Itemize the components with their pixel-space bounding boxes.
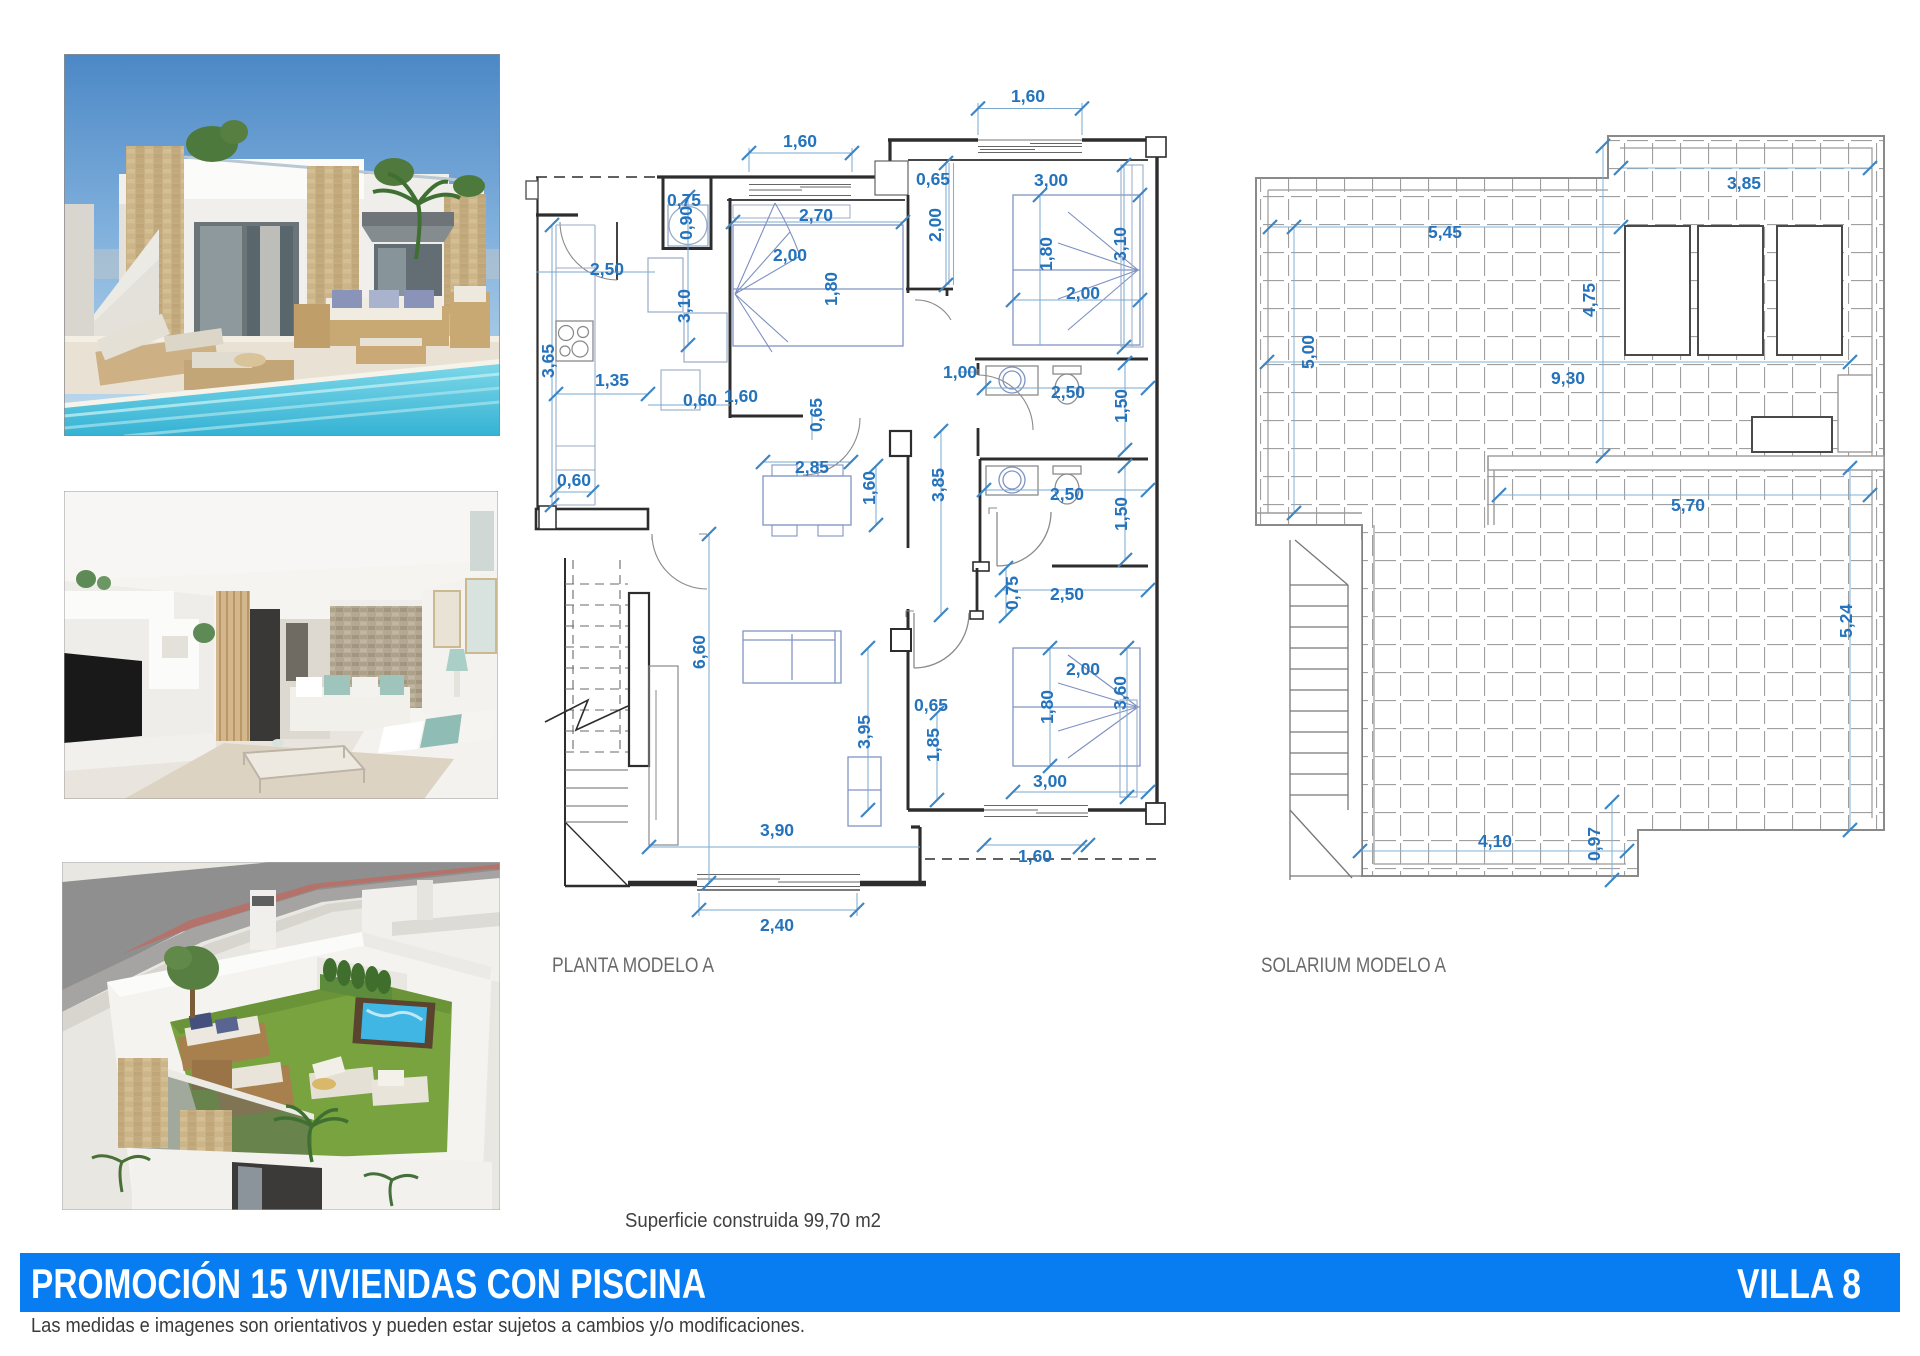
svg-text:1,60: 1,60: [724, 386, 758, 406]
svg-text:3,85: 3,85: [928, 468, 948, 502]
svg-text:1,35: 1,35: [595, 370, 629, 390]
svg-text:1,60: 1,60: [1011, 86, 1045, 106]
svg-text:2,00: 2,00: [773, 245, 807, 265]
svg-text:0,60: 0,60: [557, 470, 591, 490]
svg-text:1,85: 1,85: [923, 728, 943, 762]
svg-text:2,00: 2,00: [1066, 659, 1100, 679]
svg-text:2,40: 2,40: [760, 915, 794, 935]
svg-text:2,50: 2,50: [1050, 584, 1084, 604]
svg-text:2,00: 2,00: [1066, 283, 1100, 303]
svg-text:5,45: 5,45: [1428, 222, 1462, 242]
svg-text:PLANTA MODELO A: PLANTA MODELO A: [552, 954, 714, 977]
svg-text:1,50: 1,50: [1111, 497, 1131, 531]
svg-text:3,95: 3,95: [854, 715, 874, 749]
svg-text:Las medidas e imagenes son ori: Las medidas e imagenes son orientativos …: [31, 1315, 805, 1337]
svg-text:9,30: 9,30: [1551, 368, 1585, 388]
svg-text:3,00: 3,00: [1034, 170, 1068, 190]
svg-text:1,60: 1,60: [1018, 846, 1052, 866]
svg-text:3,10: 3,10: [674, 289, 694, 323]
svg-text:2,50: 2,50: [1051, 382, 1085, 402]
svg-text:5,00: 5,00: [1298, 335, 1318, 369]
svg-text:1,60: 1,60: [859, 471, 879, 505]
svg-text:1,60: 1,60: [783, 131, 817, 151]
svg-text:0,65: 0,65: [916, 169, 950, 189]
svg-text:0,75: 0,75: [1002, 576, 1022, 610]
svg-text:6,60: 6,60: [689, 635, 709, 669]
svg-text:2,50: 2,50: [590, 259, 624, 279]
svg-text:5,24: 5,24: [1836, 604, 1856, 638]
svg-text:1,80: 1,80: [1036, 237, 1056, 271]
svg-text:1,00: 1,00: [943, 362, 977, 382]
svg-text:Superficie construida 99,70 m2: Superficie construida 99,70 m2: [625, 1210, 881, 1232]
svg-text:5,70: 5,70: [1671, 495, 1705, 515]
svg-text:3,10: 3,10: [1110, 227, 1130, 261]
svg-text:3,85: 3,85: [1727, 173, 1761, 193]
svg-text:4,10: 4,10: [1478, 831, 1512, 851]
svg-text:0,65: 0,65: [806, 398, 826, 432]
svg-text:SOLARIUM MODELO A: SOLARIUM MODELO A: [1261, 954, 1446, 977]
svg-text:1,80: 1,80: [821, 272, 841, 306]
svg-text:3,00: 3,00: [1033, 771, 1067, 791]
svg-text:1,50: 1,50: [1111, 389, 1131, 423]
svg-text:1,80: 1,80: [1037, 690, 1057, 724]
svg-text:2,85: 2,85: [795, 457, 829, 477]
svg-text:0,60: 0,60: [683, 390, 717, 410]
svg-text:0,90: 0,90: [676, 206, 696, 240]
svg-text:0,97: 0,97: [1584, 827, 1604, 861]
svg-text:3,90: 3,90: [760, 820, 794, 840]
svg-text:2,00: 2,00: [925, 208, 945, 242]
svg-text:0,65: 0,65: [914, 695, 948, 715]
svg-text:3,60: 3,60: [1110, 676, 1130, 710]
svg-text:4,75: 4,75: [1579, 283, 1599, 317]
svg-text:2,70: 2,70: [799, 205, 833, 225]
svg-text:VILLA 8: VILLA 8: [1737, 1260, 1861, 1307]
svg-text:3,65: 3,65: [538, 344, 558, 378]
svg-text:2,50: 2,50: [1050, 484, 1084, 504]
svg-text:PROMOCIÓN 15 VIVIENDAS CON PIS: PROMOCIÓN 15 VIVIENDAS CON PISCINA: [31, 1259, 706, 1307]
